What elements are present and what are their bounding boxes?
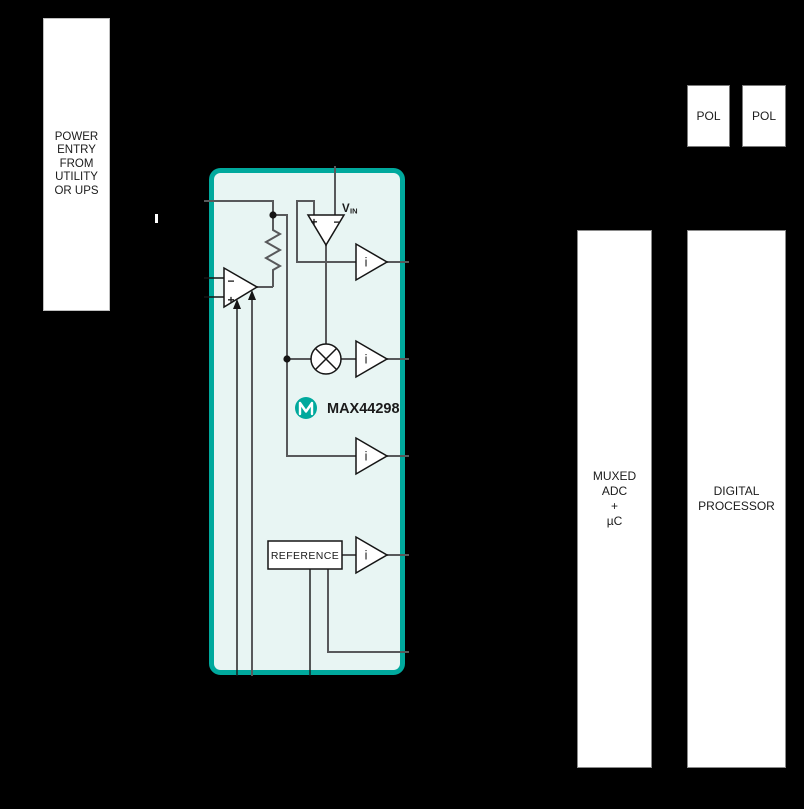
pol-label: POL [696, 109, 720, 124]
buffer-i-label: i [365, 256, 368, 270]
digital-processor-label-line: DIGITAL [714, 484, 760, 499]
muxed-adc-block: MUXED ADC + µC [577, 230, 652, 768]
pol-block-left: POL [687, 85, 730, 147]
opamp-minus-sign: − [227, 274, 234, 288]
power-entry-block: POWER ENTRY FROM UTILITY OR UPS [43, 18, 110, 311]
max44298-chip-diagram: + − V IN − + i i i i REFERENCE [200, 158, 414, 684]
reference-label: REFERENCE [271, 550, 339, 562]
digital-processor-label-line: PROCESSOR [698, 499, 775, 514]
muxed-adc-label-line: ADC [602, 484, 627, 499]
power-entry-label-line: FROM [60, 158, 94, 172]
junction-dot [269, 211, 276, 218]
muxed-adc-label-line: MUXED [593, 469, 636, 484]
digital-processor-block: DIGITAL PROCESSOR [687, 230, 786, 768]
comparator-plus-sign: + [310, 215, 317, 229]
power-entry-label-line: ENTRY [57, 144, 96, 158]
circuit-diagram: POWER ENTRY FROM UTILITY OR UPS [0, 0, 804, 809]
power-entry-label-line: POWER [55, 131, 98, 145]
vin-label: V [342, 203, 350, 215]
buffer-i-label: i [365, 353, 368, 367]
opamp-plus-sign: + [227, 293, 234, 307]
vin-subscript: IN [350, 207, 358, 216]
buffer-i-label: i [365, 450, 368, 464]
chip-part-number: MAX44298 [327, 401, 400, 417]
comparator-minus-sign: − [333, 215, 340, 229]
current-label-fragment [155, 214, 158, 223]
junction-dot [283, 355, 290, 362]
power-entry-label-line: OR UPS [54, 185, 98, 199]
pol-label: POL [752, 109, 776, 124]
muxed-adc-label-line: µC [607, 514, 623, 529]
buffer-i-label: i [365, 549, 368, 563]
pol-block-right: POL [742, 85, 786, 147]
maxim-logo-icon [295, 397, 317, 419]
chip-body [212, 171, 403, 673]
muxed-adc-label-line: + [611, 499, 618, 514]
power-entry-label-line: UTILITY [55, 171, 98, 185]
